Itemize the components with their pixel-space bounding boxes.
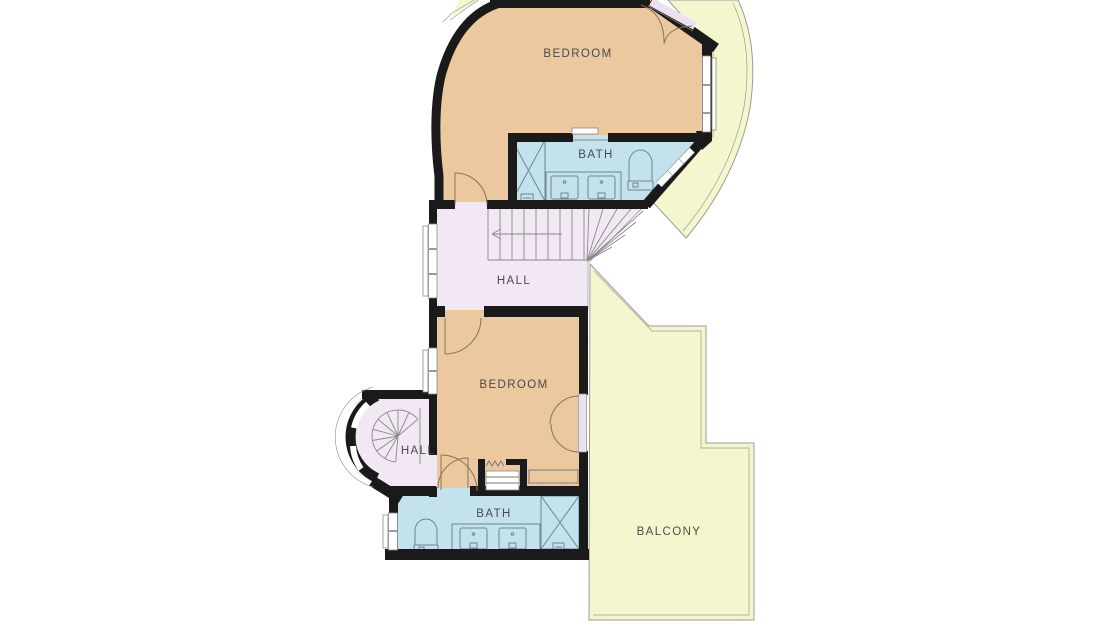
label-hall-upper: HALL [497,275,531,287]
label-hall-lower: HALL [401,445,435,457]
label-balcony: BALCONY [637,526,702,538]
label-bath-upper: BATH [578,149,613,161]
label-bedroom-lower: BEDROOM [479,379,548,391]
window-bath-lower-left [383,513,398,550]
window-hall-upper-left [423,224,437,298]
floorplan-svg: BEDROOM BATH HALL BEDROOM HALL BATH BALC… [0,0,1110,626]
floorplan-canvas: BEDROOM BATH HALL BEDROOM HALL BATH BALC… [0,0,1110,626]
window-bedroom-lower-left [423,348,437,394]
label-bath-lower: BATH [476,508,511,520]
window-bedroom-upper-right [703,56,717,132]
label-bedroom-upper: BEDROOM [543,48,612,60]
